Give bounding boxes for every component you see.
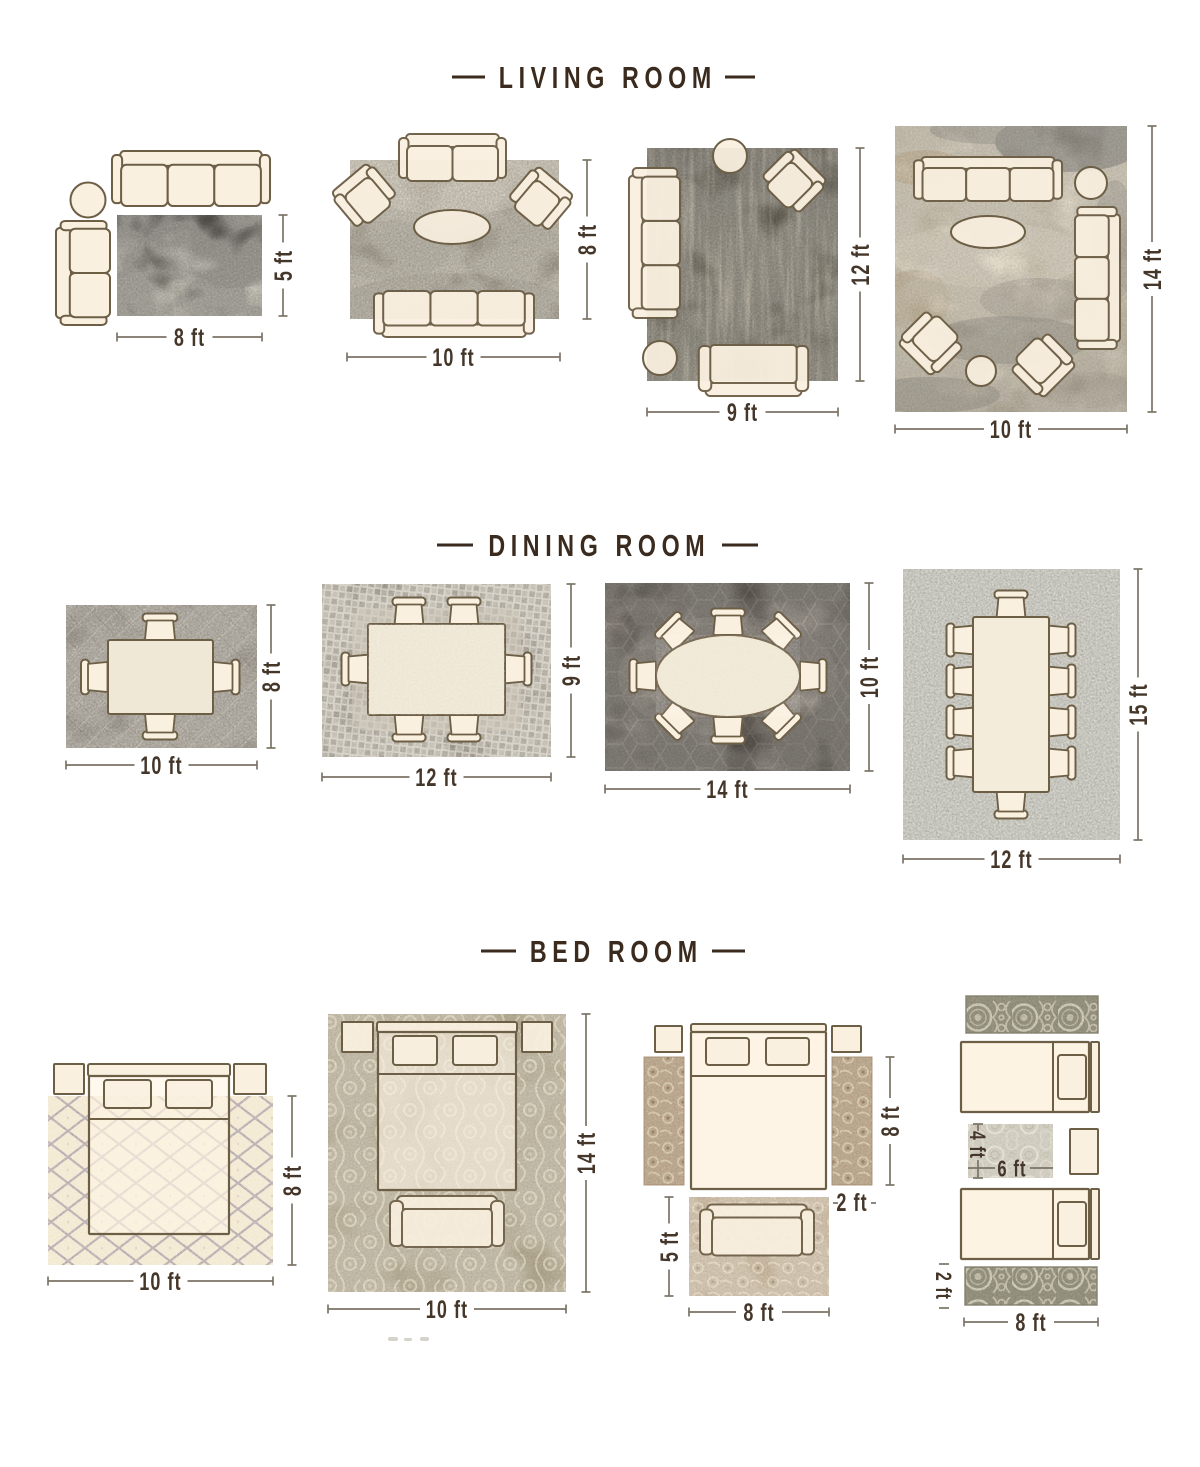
svg-text:8 ft: 8 ft bbox=[876, 1105, 905, 1136]
svg-text:14 ft: 14 ft bbox=[1138, 248, 1167, 290]
svg-text:BED ROOM: BED ROOM bbox=[530, 934, 703, 969]
svg-text:8 ft: 8 ft bbox=[743, 1298, 774, 1327]
svg-text:6 ft: 6 ft bbox=[997, 1157, 1026, 1182]
svg-text:12 ft: 12 ft bbox=[415, 763, 457, 792]
svg-text:10 ft: 10 ft bbox=[140, 751, 182, 780]
svg-text:10 ft: 10 ft bbox=[990, 415, 1032, 444]
svg-text:2 ft: 2 ft bbox=[836, 1188, 867, 1217]
svg-text:15 ft: 15 ft bbox=[1124, 683, 1153, 725]
svg-text:9 ft: 9 ft bbox=[727, 398, 758, 427]
svg-text:8 ft: 8 ft bbox=[174, 323, 205, 352]
svg-text:4 ft: 4 ft bbox=[964, 1131, 988, 1159]
svg-text:14 ft: 14 ft bbox=[572, 1132, 601, 1174]
svg-text:DINING ROOM: DINING ROOM bbox=[488, 528, 710, 563]
svg-text:8 ft: 8 ft bbox=[278, 1165, 307, 1196]
svg-text:10 ft: 10 ft bbox=[139, 1267, 181, 1296]
svg-text:2 ft: 2 ft bbox=[930, 1272, 954, 1300]
svg-text:10 ft: 10 ft bbox=[855, 656, 884, 698]
svg-text:12 ft: 12 ft bbox=[990, 845, 1032, 874]
svg-text:8 ft: 8 ft bbox=[573, 224, 602, 255]
svg-text:5 ft: 5 ft bbox=[269, 250, 298, 281]
svg-text:10 ft: 10 ft bbox=[432, 343, 474, 372]
svg-text:10 ft: 10 ft bbox=[426, 1295, 468, 1324]
svg-text:LIVING ROOM: LIVING ROOM bbox=[499, 60, 717, 95]
svg-text:5 ft: 5 ft bbox=[655, 1231, 684, 1262]
svg-text:12 ft: 12 ft bbox=[846, 243, 875, 285]
svg-text:8 ft: 8 ft bbox=[1015, 1308, 1046, 1337]
svg-text:9 ft: 9 ft bbox=[557, 655, 586, 686]
svg-text:14 ft: 14 ft bbox=[706, 775, 748, 804]
svg-text:8 ft: 8 ft bbox=[257, 661, 286, 692]
